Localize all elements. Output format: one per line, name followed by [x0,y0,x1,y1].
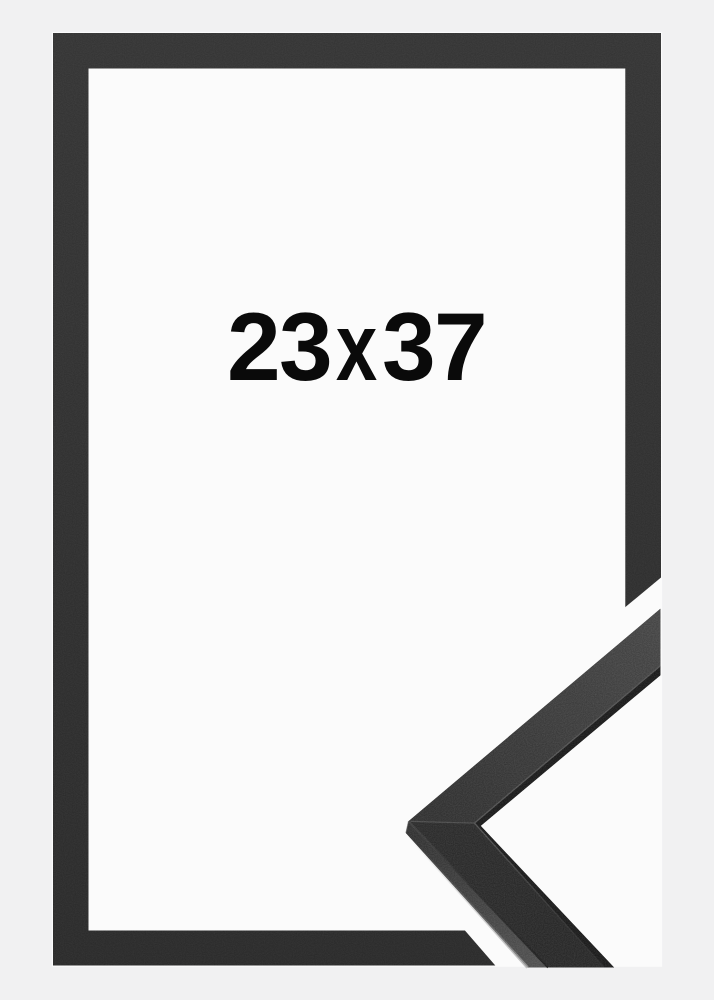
svg-text:37: 37 [382,294,486,401]
svg-text:x: x [336,294,377,402]
svg-text:23: 23 [227,294,331,401]
